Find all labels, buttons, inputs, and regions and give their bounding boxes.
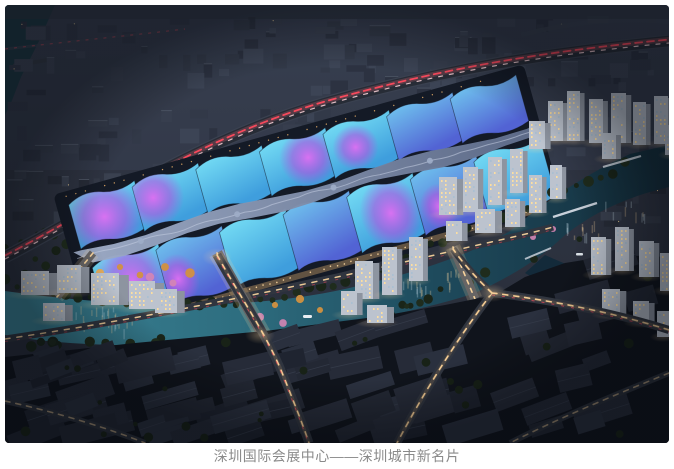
article-image	[5, 5, 669, 443]
caption-bar: 深圳国际会展中心——深圳城市新名片	[0, 443, 674, 469]
night-aerial-rendering	[5, 5, 669, 443]
vignette-overlay	[5, 5, 669, 443]
top-edge-darkening	[5, 5, 669, 19]
vignette	[5, 5, 669, 443]
image-caption: 深圳国际会展中心——深圳城市新名片	[214, 446, 461, 466]
